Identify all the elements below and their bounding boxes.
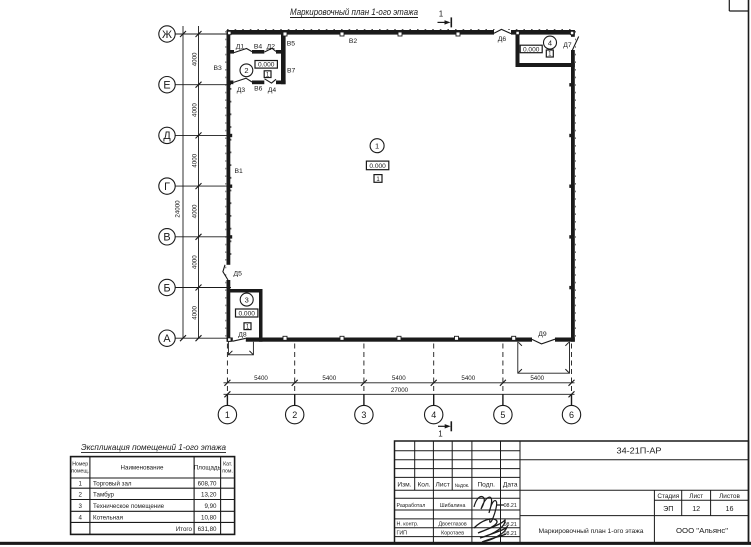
- svg-text:В5: В5: [287, 40, 296, 47]
- svg-text:Маркировочный план 1-ого этажа: Маркировочный план 1-ого этажа: [290, 7, 418, 17]
- svg-text:5400: 5400: [322, 375, 336, 382]
- svg-text:Е: Е: [163, 80, 170, 92]
- svg-text:0.000: 0.000: [258, 62, 275, 69]
- svg-text:5400: 5400: [461, 375, 475, 382]
- svg-text:4: 4: [78, 515, 82, 522]
- svg-text:Д5: Д5: [234, 270, 243, 277]
- svg-text:Д2: Д2: [267, 44, 276, 51]
- svg-text:Стадия: Стадия: [657, 493, 679, 500]
- svg-text:Торговый зал: Торговый зал: [93, 481, 132, 488]
- svg-text:Шибалина: Шибалина: [440, 503, 466, 509]
- svg-text:4000: 4000: [192, 255, 199, 269]
- svg-text:08.21: 08.21: [504, 522, 517, 528]
- svg-text:Д: Д: [163, 130, 171, 142]
- svg-text:Д6: Д6: [498, 36, 507, 43]
- svg-text:Б: Б: [163, 282, 170, 294]
- svg-text:2: 2: [244, 66, 248, 75]
- svg-text:5: 5: [500, 410, 505, 420]
- svg-text:Д4: Д4: [268, 87, 277, 94]
- svg-text:1: 1: [438, 430, 443, 439]
- svg-text:Дата: Дата: [503, 482, 518, 489]
- svg-text:помещ.: помещ.: [71, 469, 89, 475]
- svg-text:2: 2: [292, 410, 297, 420]
- svg-text:Листов: Листов: [719, 493, 740, 500]
- svg-text:Экспликация помещений 1-ого эт: Экспликация помещений 1-ого этажа: [81, 442, 226, 452]
- svg-text:Лист: Лист: [689, 493, 703, 500]
- svg-text:ГИП: ГИП: [397, 531, 408, 537]
- svg-text:Тамбур: Тамбур: [93, 492, 115, 499]
- svg-text:3: 3: [78, 503, 82, 510]
- svg-text:6: 6: [569, 410, 574, 420]
- svg-text:В6: В6: [254, 85, 263, 92]
- svg-text:Котельная: Котельная: [93, 515, 123, 522]
- svg-text:5400: 5400: [530, 375, 544, 382]
- svg-text:В4: В4: [254, 43, 263, 50]
- svg-text:В3: В3: [214, 65, 223, 72]
- svg-text:4000: 4000: [192, 153, 199, 167]
- svg-text:Изм.: Изм.: [397, 482, 411, 489]
- svg-text:В1: В1: [235, 168, 244, 175]
- svg-text:пом.: пом.: [222, 469, 233, 475]
- svg-text:1: 1: [439, 10, 444, 19]
- svg-text:Подп.: Подп.: [477, 482, 495, 489]
- svg-text:4000: 4000: [192, 52, 199, 66]
- svg-text:5400: 5400: [254, 375, 268, 382]
- svg-text:Площадь: Площадь: [194, 465, 221, 472]
- svg-text:3: 3: [361, 410, 366, 420]
- svg-text:27000: 27000: [391, 387, 409, 394]
- svg-text:16: 16: [726, 504, 734, 513]
- svg-text:Кат.: Кат.: [223, 462, 232, 468]
- svg-text:10,80: 10,80: [201, 515, 217, 522]
- svg-text:В7: В7: [287, 68, 296, 75]
- svg-text:В: В: [163, 232, 170, 244]
- svg-text:12: 12: [692, 504, 700, 513]
- svg-text:4000: 4000: [192, 204, 199, 218]
- svg-text:4: 4: [548, 38, 552, 47]
- svg-text:Д9: Д9: [538, 331, 547, 338]
- svg-text:ЭП: ЭП: [663, 504, 673, 513]
- svg-text:2: 2: [78, 492, 82, 499]
- svg-text:Г: Г: [164, 181, 170, 193]
- svg-text:4: 4: [431, 410, 436, 420]
- svg-text:5400: 5400: [392, 375, 406, 382]
- svg-text:608,70: 608,70: [198, 481, 217, 488]
- svg-text:Двоеглазов: Двоеглазов: [439, 522, 467, 528]
- svg-text:№док.: №док.: [455, 483, 470, 489]
- svg-text:1: 1: [78, 481, 82, 488]
- svg-text:Наименование: Наименование: [121, 465, 164, 472]
- svg-text:В2: В2: [349, 38, 358, 45]
- svg-text:Коротаев: Коротаев: [441, 531, 464, 537]
- svg-text:0.000: 0.000: [369, 163, 386, 170]
- svg-text:13,20: 13,20: [201, 492, 217, 499]
- svg-text:1: 1: [375, 142, 379, 151]
- svg-text:Н. контр.: Н. контр.: [397, 522, 419, 528]
- svg-text:Итого: Итого: [176, 526, 193, 533]
- svg-text:3: 3: [245, 295, 249, 304]
- svg-text:Маркировочный план 1-ого этажа: Маркировочный план 1-ого этажа: [539, 528, 645, 535]
- svg-text:4000: 4000: [192, 103, 199, 117]
- svg-text:Д3: Д3: [237, 87, 246, 94]
- svg-text:24000: 24000: [175, 200, 182, 218]
- svg-text:08.21: 08.21: [504, 503, 517, 509]
- svg-text:Ж: Ж: [162, 29, 172, 41]
- svg-text:631,80: 631,80: [198, 526, 217, 533]
- svg-text:Номер: Номер: [72, 462, 88, 468]
- svg-text:9,90: 9,90: [204, 503, 217, 510]
- svg-text:1: 1: [225, 410, 230, 420]
- svg-text:Кол.: Кол.: [417, 482, 430, 489]
- svg-text:4000: 4000: [192, 305, 199, 319]
- svg-text:Д1: Д1: [236, 44, 245, 51]
- svg-text:0.000: 0.000: [523, 46, 540, 53]
- svg-text:Техническое помещение: Техническое помещение: [93, 503, 165, 510]
- svg-text:0.000: 0.000: [238, 311, 255, 318]
- svg-text:Д7: Д7: [563, 42, 572, 49]
- svg-text:ООО "Альянс": ООО "Альянс": [676, 528, 729, 535]
- svg-text:Д8: Д8: [238, 331, 247, 338]
- svg-text:34-21П-АР: 34-21П-АР: [617, 447, 662, 456]
- svg-text:Лист: Лист: [436, 482, 450, 489]
- svg-text:А: А: [163, 333, 171, 345]
- svg-text:Разработал: Разработал: [397, 503, 426, 509]
